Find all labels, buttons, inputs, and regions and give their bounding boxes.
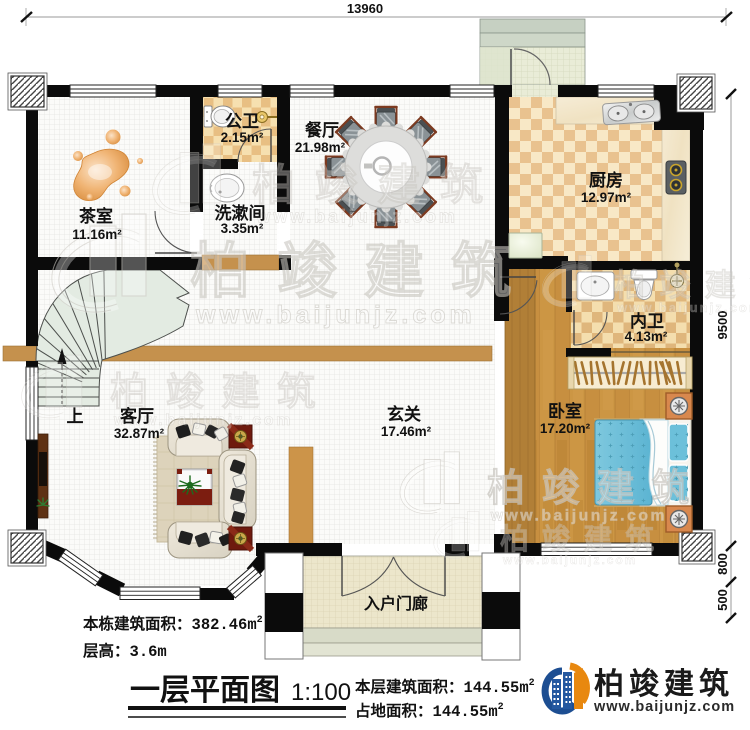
- svg-text:入户门廊: 入户门廊: [364, 594, 428, 613]
- svg-text:柏竣建筑: 柏竣建筑: [594, 667, 734, 701]
- svg-text:800: 800: [715, 553, 730, 575]
- svg-text:www.baijunjz.com: www.baijunjz.com: [502, 553, 637, 567]
- svg-text:占地面积：144.55m2: 占地面积：144.55m2: [355, 701, 504, 721]
- svg-text:柏竣建筑: 柏竣建筑: [190, 238, 538, 305]
- svg-text:柏竣建筑: 柏竣建筑: [614, 268, 750, 303]
- svg-text:17.20m²: 17.20m²: [540, 421, 591, 436]
- svg-text:21.98m²: 21.98m²: [295, 140, 346, 155]
- svg-text:11.16m²: 11.16m²: [72, 227, 122, 242]
- svg-text:茶室: 茶室: [79, 206, 113, 226]
- svg-text:4.13m²: 4.13m²: [625, 329, 668, 344]
- svg-text:500: 500: [715, 589, 730, 611]
- svg-text:客厅: 客厅: [119, 406, 154, 426]
- svg-text:13960: 13960: [347, 1, 383, 16]
- svg-text:2.15m²: 2.15m²: [221, 130, 264, 145]
- svg-text:柏竣建筑: 柏竣建筑: [487, 468, 706, 510]
- svg-text:洗漱间: 洗漱间: [215, 203, 266, 223]
- svg-text:www.baijunjz.com: www.baijunjz.com: [195, 301, 476, 329]
- svg-text:柏竣建筑: 柏竣建筑: [500, 523, 667, 556]
- svg-text:1:100: 1:100: [291, 679, 351, 706]
- svg-text:层高：3.6m: 层高：3.6m: [83, 641, 167, 661]
- svg-text:柏竣建筑: 柏竣建筑: [252, 162, 503, 210]
- svg-text:上: 上: [67, 407, 84, 426]
- svg-text:公卫: 公卫: [225, 112, 259, 131]
- svg-text:卧室: 卧室: [548, 401, 582, 421]
- svg-text:玄关: 玄关: [387, 404, 421, 424]
- svg-text:12.97m²: 12.97m²: [581, 190, 632, 205]
- svg-text:餐厅: 餐厅: [305, 120, 339, 140]
- svg-text:厨房: 厨房: [589, 170, 623, 190]
- svg-text:www.baijunjz.com: www.baijunjz.com: [255, 206, 457, 226]
- svg-text:本栋建筑面积：382.46m2: 本栋建筑面积：382.46m2: [83, 614, 263, 634]
- svg-text:www.baijunjz.com: www.baijunjz.com: [593, 699, 735, 715]
- svg-text:17.46m²: 17.46m²: [381, 424, 432, 439]
- svg-text:内卫: 内卫: [630, 311, 664, 331]
- svg-text:www.baijunjz.com: www.baijunjz.com: [490, 508, 667, 525]
- svg-text:32.87m²: 32.87m²: [114, 426, 165, 441]
- svg-text:本层建筑面积：144.55m2: 本层建筑面积：144.55m2: [355, 677, 535, 697]
- svg-text:3.35m²: 3.35m²: [221, 221, 264, 236]
- svg-text:一层平面图: 一层平面图: [130, 674, 280, 707]
